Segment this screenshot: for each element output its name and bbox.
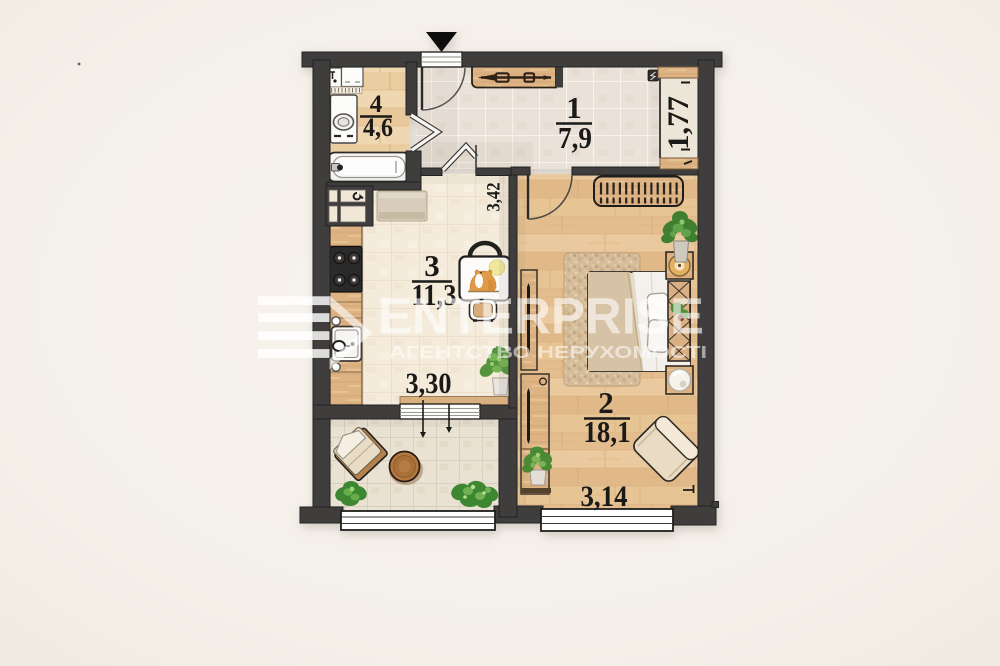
svg-text:АГЕНТСТВО НЕРУХОМОСТІ: АГЕНТСТВО НЕРУХОМОСТІ xyxy=(389,342,707,362)
svg-text:ENTERPRISE: ENTERPRISE xyxy=(378,288,704,345)
svg-text:3,14: 3,14 xyxy=(581,480,628,513)
svg-text:3,30: 3,30 xyxy=(406,367,452,400)
svg-text:18,1: 18,1 xyxy=(584,414,631,449)
svg-text:3,42: 3,42 xyxy=(484,183,505,212)
svg-text:4,6: 4,6 xyxy=(363,113,393,142)
svg-text:1,77: 1,77 xyxy=(662,96,695,150)
svg-text:7,9: 7,9 xyxy=(558,120,592,155)
